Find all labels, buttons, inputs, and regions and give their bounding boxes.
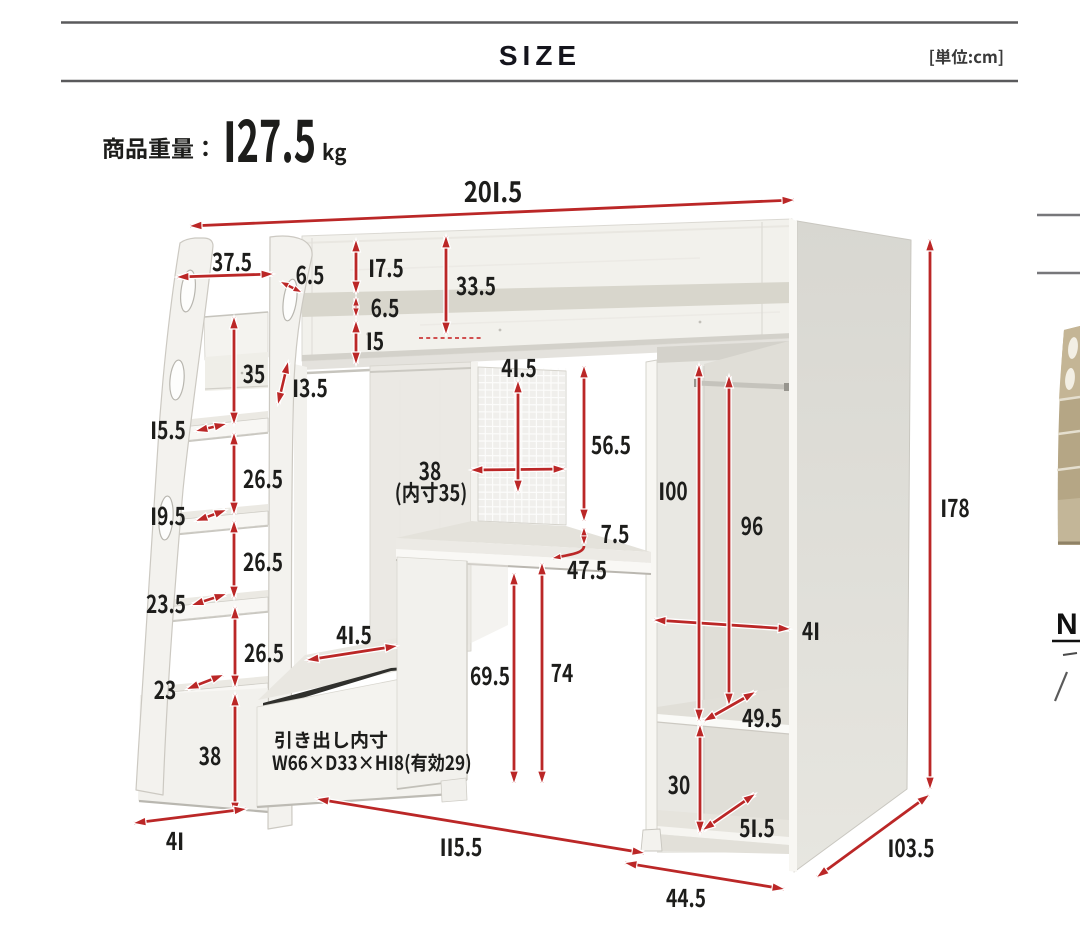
svg-text:SIZE: SIZE — [499, 40, 581, 71]
svg-text:N: N — [1056, 608, 1078, 641]
